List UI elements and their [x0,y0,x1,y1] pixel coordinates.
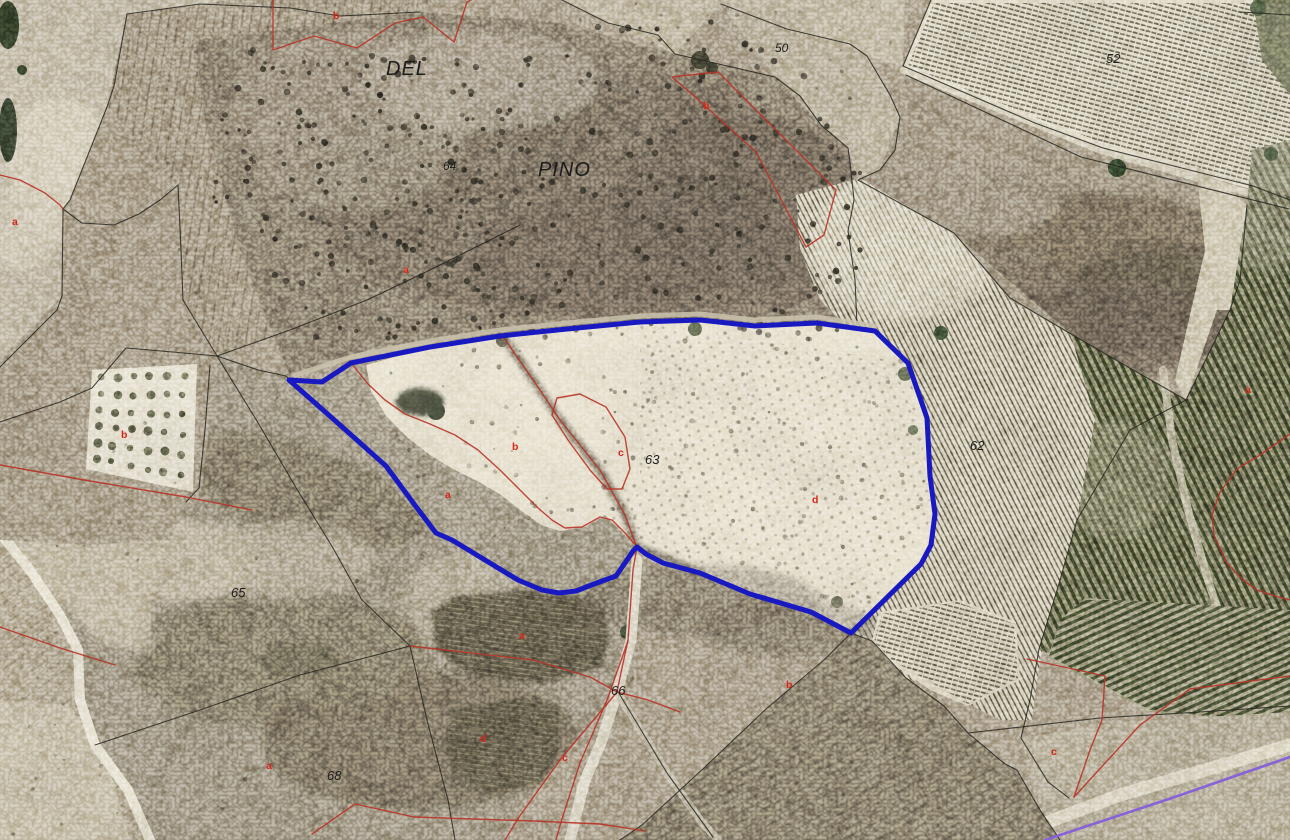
svg-text:a: a [266,760,272,772]
svg-text:63: 63 [645,452,660,467]
svg-text:65: 65 [231,585,246,600]
svg-text:b: b [512,441,518,453]
svg-text:62: 62 [970,438,985,453]
svg-text:PINO: PINO [538,159,591,181]
svg-text:c: c [1051,746,1057,758]
svg-text:a: a [12,216,18,228]
svg-text:c: c [562,752,568,764]
svg-text:DEL: DEL [386,58,428,80]
svg-text:b: b [333,10,339,22]
svg-text:b: b [703,100,709,112]
svg-text:b: b [786,679,792,691]
svg-text:a: a [1245,384,1251,396]
svg-text:68: 68 [327,768,342,783]
svg-text:d: d [480,733,486,745]
svg-text:b: b [121,429,127,441]
svg-text:a: a [403,264,409,276]
svg-text:66: 66 [611,683,626,698]
svg-text:c: c [618,447,624,459]
svg-text:a: a [519,630,525,642]
svg-text:d: d [812,494,818,506]
svg-text:a: a [445,489,451,501]
svg-text:64: 64 [443,159,457,173]
svg-text:50: 50 [775,41,789,55]
svg-text:52: 52 [1106,51,1121,66]
